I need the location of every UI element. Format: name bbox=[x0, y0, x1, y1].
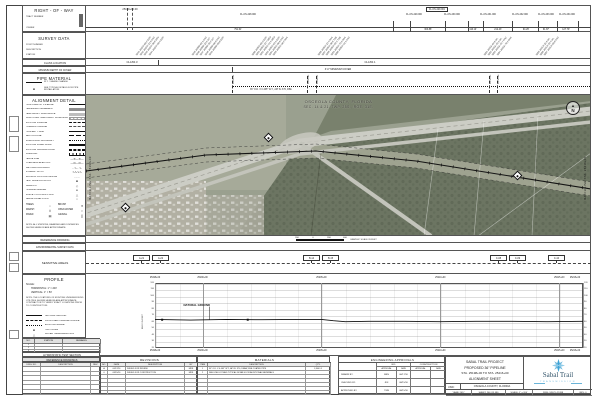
milepost-dot bbox=[124, 207, 126, 209]
sensitive-area-tick bbox=[141, 261, 142, 264]
legend-label: EXISTING UNPAVED ROAD bbox=[26, 149, 68, 151]
legend-symbol bbox=[69, 104, 85, 107]
approvals-value-cell bbox=[411, 387, 431, 395]
band-title-depth-of-cover: MINIMUM DEPTH OF COVER bbox=[23, 69, 87, 72]
legend-label: PERMANENT EASEMENT bbox=[26, 108, 68, 110]
station-label-bottom: 25205+00 bbox=[309, 350, 333, 352]
profile-legend-label: EXISTING GRADE bbox=[45, 324, 85, 326]
legend-symbol bbox=[69, 140, 85, 143]
distance-label: 127.79' bbox=[554, 29, 578, 31]
elevation-tick-label-left: 100 bbox=[144, 295, 154, 297]
legend-symbol bbox=[69, 135, 85, 136]
station-range: STA. 25198+00 TO STA. 25216+00 bbox=[446, 371, 524, 375]
band-title-environmental: ENVIRONMENTAL SURVEY DATA bbox=[23, 246, 87, 249]
approvals-value-cell bbox=[411, 379, 431, 387]
title-text-cell: SABAL TRAIL PROJECT PROPOSED 36" PIPELIN… bbox=[446, 357, 524, 383]
approvals-value-cell: JDF bbox=[377, 379, 397, 387]
sensitive-area-tick bbox=[556, 261, 557, 264]
scale-bar-number: 200 bbox=[293, 237, 301, 239]
survey-field-description: DESCRIPTION bbox=[26, 49, 41, 51]
class-break-tick bbox=[158, 60, 159, 65]
logo-name: Sabal Trail bbox=[524, 371, 592, 379]
profile-scale-vertical: VERTICAL: 1" = 50' bbox=[31, 291, 52, 294]
legend-label: EXISTING PAVED ROAD bbox=[26, 144, 68, 146]
approvals-row-label: CHECKED BY: bbox=[339, 379, 377, 387]
approvals-value-cell: 08/15/16 bbox=[397, 379, 411, 387]
tract-label: FL-OS-234.000 bbox=[552, 14, 582, 16]
mini-legend-symbol: ≈ bbox=[78, 209, 86, 213]
sabal-trail-logo-icon bbox=[552, 359, 565, 372]
tract-label-boxed: FL-OS-229.001 bbox=[426, 7, 448, 12]
title-block-footer: YEAR: 2017 SHEET: 246 OF 480 SCALE: 1" =… bbox=[446, 389, 592, 395]
legend-symbol: ○ bbox=[69, 198, 85, 201]
refdwg-cell bbox=[41, 390, 91, 395]
band-title-pipe-material: PIPE MATERIAL bbox=[23, 76, 85, 81]
milepost-dot bbox=[516, 175, 518, 177]
band-title-right-of-way: RIGHT - OF - WAY bbox=[23, 8, 85, 13]
class-location-label: CLASS 1 bbox=[355, 61, 385, 64]
profile-legend-label: NATURAL GROUND bbox=[45, 315, 85, 317]
scale-bar-caption: GRAPHIC SCALE IN FEET bbox=[350, 239, 377, 241]
tract-swatch bbox=[79, 14, 83, 27]
legend-symbol bbox=[69, 108, 85, 111]
elevation-tick-label-right: 100 bbox=[584, 295, 594, 297]
pipe-break-station: 25212+39 bbox=[490, 75, 492, 84]
elevation-tick-label-left: 70 bbox=[144, 314, 154, 316]
legend-label: ADDITIONAL TEMPORARY WORKSPACE bbox=[26, 117, 68, 119]
map-county-label: OSCEOLA COUNTY, FLORIDA bbox=[86, 99, 591, 104]
approvals-value-cell bbox=[431, 379, 446, 387]
station-label-bottom: 25210+00 bbox=[428, 350, 452, 352]
mini-legend-symbol: ⌇⌇ bbox=[46, 209, 54, 213]
scale-bar-segment bbox=[308, 239, 320, 241]
scale-bar-segment bbox=[320, 239, 332, 241]
sensitive-areas-line bbox=[86, 263, 591, 264]
mini-legend-symbol: ▤ bbox=[46, 214, 54, 218]
sensitive-areas-box: SENSITIVE AREAS bbox=[22, 251, 86, 274]
elevation-tick-label-right: 120 bbox=[584, 282, 594, 284]
band-title-sensitive-areas: SENSITIVE AREAS bbox=[23, 261, 87, 265]
station-label-top: 25200+00 bbox=[191, 277, 215, 279]
logo-sub: TRANSMISSION bbox=[524, 381, 592, 383]
margin-tick-box bbox=[9, 330, 19, 339]
sheet-type: ALIGNMENT SHEET bbox=[446, 377, 524, 381]
scale-cell: SCALE: 1" = 200' bbox=[506, 390, 533, 396]
elevation-tick-label-left: 60 bbox=[144, 321, 154, 323]
elevation-tick-label-right: 30 bbox=[584, 340, 594, 342]
legend-symbol: —⊙—⊙— bbox=[69, 162, 85, 165]
distance-label: 212.43' bbox=[486, 29, 510, 31]
profile-legend-label: TEST BORE bbox=[45, 329, 85, 331]
legend-label: OVERHEAD ELECTRIC bbox=[26, 162, 68, 164]
profile-legend-symbol bbox=[26, 325, 42, 328]
approvals-table: ENGINEERING APPROVALSBIDCONSTRUCTIONAPPR… bbox=[338, 356, 445, 394]
legend-symbol: ∿∿∿∿ bbox=[69, 171, 85, 174]
legend-symbol: ■ bbox=[69, 180, 85, 183]
row-field-owner: OWNER bbox=[26, 27, 34, 29]
sensitive-area-tick bbox=[160, 261, 161, 264]
row-field-tract-number: TRACT NUMBER bbox=[26, 16, 43, 18]
legend-symbol bbox=[69, 113, 85, 116]
sensitive-area-tick bbox=[330, 261, 331, 264]
materials-table: MATERIALSITEMDESCRIPTIONQTY.136" O.D. X … bbox=[197, 356, 330, 394]
class-location-box: CLASS LOCATION bbox=[22, 59, 86, 66]
mini-legend-label: TREES bbox=[26, 204, 46, 206]
depth-of-cover-band: 3'-0" MINIMUM COVER bbox=[86, 66, 591, 73]
station-label-top: 25198+00 bbox=[143, 277, 167, 279]
elevation-tick-label-right: 50 bbox=[584, 327, 594, 329]
band-title-survey-data: SURVEY DATA bbox=[23, 36, 85, 41]
match-line-right: MATCH LINE STA. 25216+00 bbox=[584, 156, 587, 200]
legend-label: FENCE LINE bbox=[26, 158, 68, 160]
mini-legend-symbol: ✕ bbox=[78, 204, 86, 208]
legend-label: AERIAL PANEL POINT bbox=[26, 198, 68, 200]
map-section-label: SEC. 14 & 21, TWP. 25S., RGE. 31E. bbox=[86, 105, 591, 109]
pipe-break-station: 25205+89 bbox=[308, 75, 310, 84]
table-cell bbox=[208, 391, 306, 395]
logo-cell: Sabal Trail TRANSMISSION bbox=[524, 357, 592, 389]
elevation-tick-label-left: 30 bbox=[144, 340, 154, 342]
profile-legend-symbol: △ bbox=[26, 334, 42, 337]
pipe-legend-label: SEE TYPICAL DETAILS FOR PIPE INSTALLATIO… bbox=[44, 87, 85, 92]
alignment-detail-box: ALIGNMENT DETAIL NOTE: ALL STATIONS, BEA… bbox=[22, 95, 86, 236]
natural-ground-annotation: NATURAL GROUND bbox=[184, 303, 210, 307]
margin-tick-box bbox=[9, 252, 19, 261]
road-crossing-line bbox=[132, 8, 133, 30]
approvals-value-cell: 08/15/16 bbox=[397, 387, 411, 395]
legend-symbol bbox=[69, 131, 85, 134]
profile-scale-horizontal: HORIZONTAL: 1" = 200' bbox=[31, 287, 57, 290]
aerial-map-art bbox=[86, 95, 591, 236]
legend-label: FOREIGN PIPELINE bbox=[26, 126, 68, 128]
county-location: OSCEOLA COUNTY, FLORIDA bbox=[460, 385, 524, 388]
scale-bar-number: 200 bbox=[325, 237, 333, 239]
survey-data-band: 1041 25199+08.2 EOP1042 25199+21.5 FNC10… bbox=[86, 32, 591, 59]
natural-ground-line bbox=[155, 319, 583, 321]
legend-symbol bbox=[69, 153, 85, 156]
pipe-legend-label: W.T. / GRADE CHANGE bbox=[44, 81, 85, 83]
environmental-band bbox=[86, 243, 591, 251]
elevation-tick-label-left: 80 bbox=[144, 308, 154, 310]
elevation-tick-label-left: 90 bbox=[144, 301, 154, 303]
approvals-value-cell: 06/17/16 bbox=[397, 371, 411, 379]
elevation-tick-label-right: 60 bbox=[584, 321, 594, 323]
approvals-value-cell bbox=[431, 371, 446, 379]
legend-label: MILEPOST bbox=[26, 185, 68, 187]
mini-legend-symbol: ○ bbox=[46, 204, 54, 208]
legend-label: EXISTING PIPELINE bbox=[26, 122, 68, 124]
milepost-dot bbox=[267, 137, 269, 139]
legend-label: SURVEY CONTROL POINT bbox=[26, 194, 68, 196]
alignment-detail-note: NOTE: ALL STATIONS, BEARINGS AND DISTANC… bbox=[26, 224, 84, 229]
aerial-map: OSCEOLA COUNTY, FLORIDA SEC. 14 & 21, TW… bbox=[86, 95, 591, 236]
mini-legend-label: MARSH bbox=[26, 209, 46, 211]
reference-drawing-band: 2000200400GRAPHIC SCALE IN FEET bbox=[86, 236, 591, 243]
profile-legend-symbol bbox=[26, 315, 42, 318]
elevation-tick-label-right: 80 bbox=[584, 308, 594, 310]
sensitive-area-tick bbox=[311, 261, 312, 264]
survey-data-box: SURVEY DATA POINT NUMBER DESCRIPTION STA… bbox=[22, 32, 86, 59]
survey-field-point-number: POINT NUMBER bbox=[26, 44, 43, 46]
right-of-way-band: 25199+00.00FL-OS-228.000FL-OS-229.000FL-… bbox=[86, 5, 591, 32]
profile-line-svg bbox=[155, 283, 583, 348]
environmental-survey-box: ENVIRONMENTAL SURVEY DATA bbox=[22, 243, 86, 251]
match-line-left: MATCH LINE STA. 25198+00 bbox=[89, 156, 92, 200]
profile-legend-label: WATER TABLE ELEVATION bbox=[45, 333, 85, 335]
class-location-band: CLASS 3CLASS 1 bbox=[86, 59, 591, 66]
year-cell: YEAR: 2017 bbox=[446, 390, 472, 396]
survey-field-station: STATION bbox=[26, 54, 35, 56]
approvals-value-cell bbox=[411, 371, 431, 379]
revisions-table: REVISIONSNO.DATEDESCRIPTIONBYA06/17/16IS… bbox=[100, 356, 197, 394]
legend-label: SUBDIVISION BOUNDARY bbox=[26, 140, 68, 142]
legend-symbol bbox=[69, 126, 85, 129]
elevation-tick-label-right: 70 bbox=[584, 314, 594, 316]
sensitive-areas-band: A-21A-22B-14B-15C-08C-09C-10 bbox=[86, 251, 591, 274]
station-label: 25199+00.00 bbox=[108, 8, 152, 11]
legend-label: EROSION CONTROL DEVICE bbox=[26, 176, 68, 178]
legend-symbol: ● bbox=[69, 189, 85, 192]
profile-chart: ELEV. IN FEET 12012011011010010090908080… bbox=[86, 274, 591, 356]
approvals-value-cell: MRS bbox=[377, 371, 397, 379]
legend-label: TEST BORE LOCATION bbox=[26, 180, 68, 182]
elevation-tick-label-left: 110 bbox=[144, 288, 154, 290]
tract-label: FL-OS-228.000 bbox=[233, 14, 263, 16]
sensitive-area-tick bbox=[498, 261, 499, 264]
margin-tick-box bbox=[9, 263, 19, 272]
legend-label: TEMPORARY WORKSPACE bbox=[26, 113, 68, 115]
pipe-line bbox=[232, 86, 590, 87]
legend-label: PIPELINE MARKER bbox=[26, 189, 68, 191]
tract-divider-tick bbox=[578, 21, 579, 32]
table-cell bbox=[126, 391, 185, 395]
tract-label: FL-OS-230.000 bbox=[437, 14, 467, 16]
pipe-break-station: 25212+68 bbox=[498, 75, 500, 84]
class-location-label: CLASS 3 bbox=[117, 61, 147, 64]
elevation-tick-label-left: 50 bbox=[144, 327, 154, 329]
legend-label: SECTION LINE bbox=[26, 135, 68, 137]
mini-legend-label: BRUSH bbox=[58, 204, 78, 206]
approvals-blank bbox=[339, 363, 377, 371]
road-crossing-line bbox=[127, 8, 128, 30]
mini-legend-symbol: ▒ bbox=[78, 214, 86, 218]
profile-scale-label: SCALE: bbox=[26, 283, 35, 286]
profile-note: NOTE: THE LOCATIONS OF EXISTING UNDERGRO… bbox=[26, 297, 84, 308]
profile-legend-symbol bbox=[26, 320, 42, 323]
pipe-segment-label: 36" O.D. X 0.465" W.T., API 5L X70, FBE bbox=[250, 89, 292, 91]
elevation-tick-label-right: 20 bbox=[584, 347, 594, 349]
legend-label: STREAM / DITCH bbox=[26, 171, 68, 173]
north-arrow-n: N bbox=[567, 108, 579, 113]
pipe-break-station: 25203+21 bbox=[233, 75, 235, 84]
title-block: SABAL TRAIL PROJECT PROPOSED 36" PIPELIN… bbox=[445, 356, 591, 394]
band-title-profile: PROFILE bbox=[23, 277, 85, 282]
pipe-material-box: PIPE MATERIAL W.T. / GRADE CHANGE■SEE TY… bbox=[22, 73, 86, 95]
legend-label: RAILROAD bbox=[26, 153, 68, 155]
station-label-bottom: 25200+00 bbox=[191, 350, 215, 352]
rev-cell: REV: 0 bbox=[574, 390, 592, 396]
table-cell bbox=[198, 391, 208, 395]
profile-box: PROFILE SCALE: HORIZONTAL: 1" = 200' VER… bbox=[22, 274, 86, 338]
station-gridline bbox=[583, 283, 584, 348]
tract-divider-tick bbox=[512, 21, 513, 32]
band-title-class-location: CLASS LOCATION bbox=[23, 62, 87, 65]
elevation-tick-label-right: 90 bbox=[584, 301, 594, 303]
alignment-sheet-page: RIGHT - OF - WAY TRACT NUMBER OWNER SURV… bbox=[0, 0, 600, 400]
approvals-row-label: APPROVED BY: bbox=[339, 387, 377, 395]
pipeline-subtitle: PROPOSED 36" PIPELINE bbox=[446, 366, 524, 370]
depth-of-cover-box: MINIMUM DEPTH OF COVER bbox=[22, 66, 86, 73]
mini-legend-label: PAVED bbox=[26, 214, 46, 216]
tract-label: FL-OS-231.000 bbox=[473, 14, 503, 16]
scale-bar-number: 0 bbox=[309, 237, 317, 239]
station-label-top: 25210+00 bbox=[428, 277, 452, 279]
approvals-value-cell: TWB bbox=[377, 387, 397, 395]
scale-bar-segment bbox=[332, 239, 344, 241]
tract-divider-tick bbox=[445, 21, 446, 32]
legend-symbol bbox=[69, 117, 85, 120]
table-cell bbox=[101, 391, 108, 395]
station-mini-table: NO.STATIONREMARKS123 bbox=[22, 338, 100, 352]
mini-legend-label: GRAVEL bbox=[58, 214, 78, 216]
sheet-cell: SHEET: 246 OF 480 bbox=[472, 390, 506, 396]
distance-label: 363.88' bbox=[416, 29, 440, 31]
north-arrow-icon: ▲ N bbox=[566, 101, 580, 115]
pipe-legend-symbol: ■ bbox=[26, 88, 42, 91]
band-title-reference-drawing: REFERENCE DRAWING bbox=[23, 239, 87, 242]
scale-bar-segment bbox=[296, 239, 308, 241]
mini-legend-label: OPEN WATER bbox=[58, 209, 78, 211]
legend-label: PROPERTY LINE bbox=[26, 131, 68, 133]
legend-label: PROPOSED 36" PIPELINE bbox=[26, 104, 68, 106]
elevation-tick-label-left: 120 bbox=[144, 282, 154, 284]
distance-label: 791.61' bbox=[226, 29, 250, 31]
sensitive-area-tick bbox=[517, 261, 518, 264]
elevation-tick-label-left: 40 bbox=[144, 334, 154, 336]
approvals-row-label: DRAWN BY: bbox=[339, 371, 377, 379]
legend-symbol bbox=[69, 144, 85, 146]
profile-legend-symbol: ■ bbox=[26, 329, 42, 332]
pipe-material-band: 25203+2125205+8925206+2125212+3925212+68… bbox=[86, 73, 591, 95]
reference-drawings-table: DWG. NO.DESCRIPTIONREV. bbox=[22, 362, 100, 394]
test-bore-marker bbox=[161, 319, 163, 321]
band-title-alignment-detail: ALIGNMENT DETAIL bbox=[23, 98, 85, 103]
pipe-break-station: 25206+21 bbox=[317, 75, 319, 84]
right-of-way-box: RIGHT - OF - WAY TRACT NUMBER OWNER bbox=[22, 5, 86, 32]
tract-divider-tick bbox=[393, 21, 394, 32]
elevation-tick-label-right: 110 bbox=[584, 288, 594, 290]
project-title: SABAL TRAIL PROJECT bbox=[446, 360, 524, 364]
reference-drawing-box: REFERENCE DRAWING bbox=[22, 236, 86, 243]
test-bore-marker bbox=[247, 319, 249, 321]
station-label-top: 25216+00 bbox=[563, 277, 587, 279]
tract-divider-tick bbox=[410, 21, 411, 32]
legend-label: WETLAND BOUNDARY bbox=[26, 167, 68, 169]
scale-bar-number: 400 bbox=[341, 237, 349, 239]
distance-label: 116.10' bbox=[461, 29, 485, 31]
legend-symbol bbox=[69, 149, 85, 151]
refdwg-cell bbox=[23, 390, 41, 395]
cover-tick bbox=[232, 67, 233, 72]
elevation-tick-label-right: 40 bbox=[584, 334, 594, 336]
station-label-top: 25205+00 bbox=[309, 277, 333, 279]
pipe-legend-symbol bbox=[26, 82, 42, 85]
approvals-value-cell bbox=[431, 387, 446, 395]
cover-label: 3'-0" MINIMUM COVER bbox=[308, 68, 368, 71]
profile-legend-label: PROPOSED PIPELINE PROFILE bbox=[45, 320, 85, 322]
table-cell bbox=[306, 391, 331, 395]
table-cell bbox=[108, 391, 126, 395]
station-label-bottom: 25216+00 bbox=[563, 350, 587, 352]
margin-tick-box bbox=[9, 116, 19, 132]
margin-tick-box bbox=[9, 136, 19, 152]
legend-symbol bbox=[69, 122, 85, 125]
station-label-bottom: 25198+00 bbox=[143, 350, 167, 352]
tract-label: FL-OS-229.000 bbox=[399, 14, 429, 16]
dwg-cell: DWG: SW-PL-25198 bbox=[533, 390, 574, 396]
elevation-tick-label-left: 20 bbox=[144, 347, 154, 349]
